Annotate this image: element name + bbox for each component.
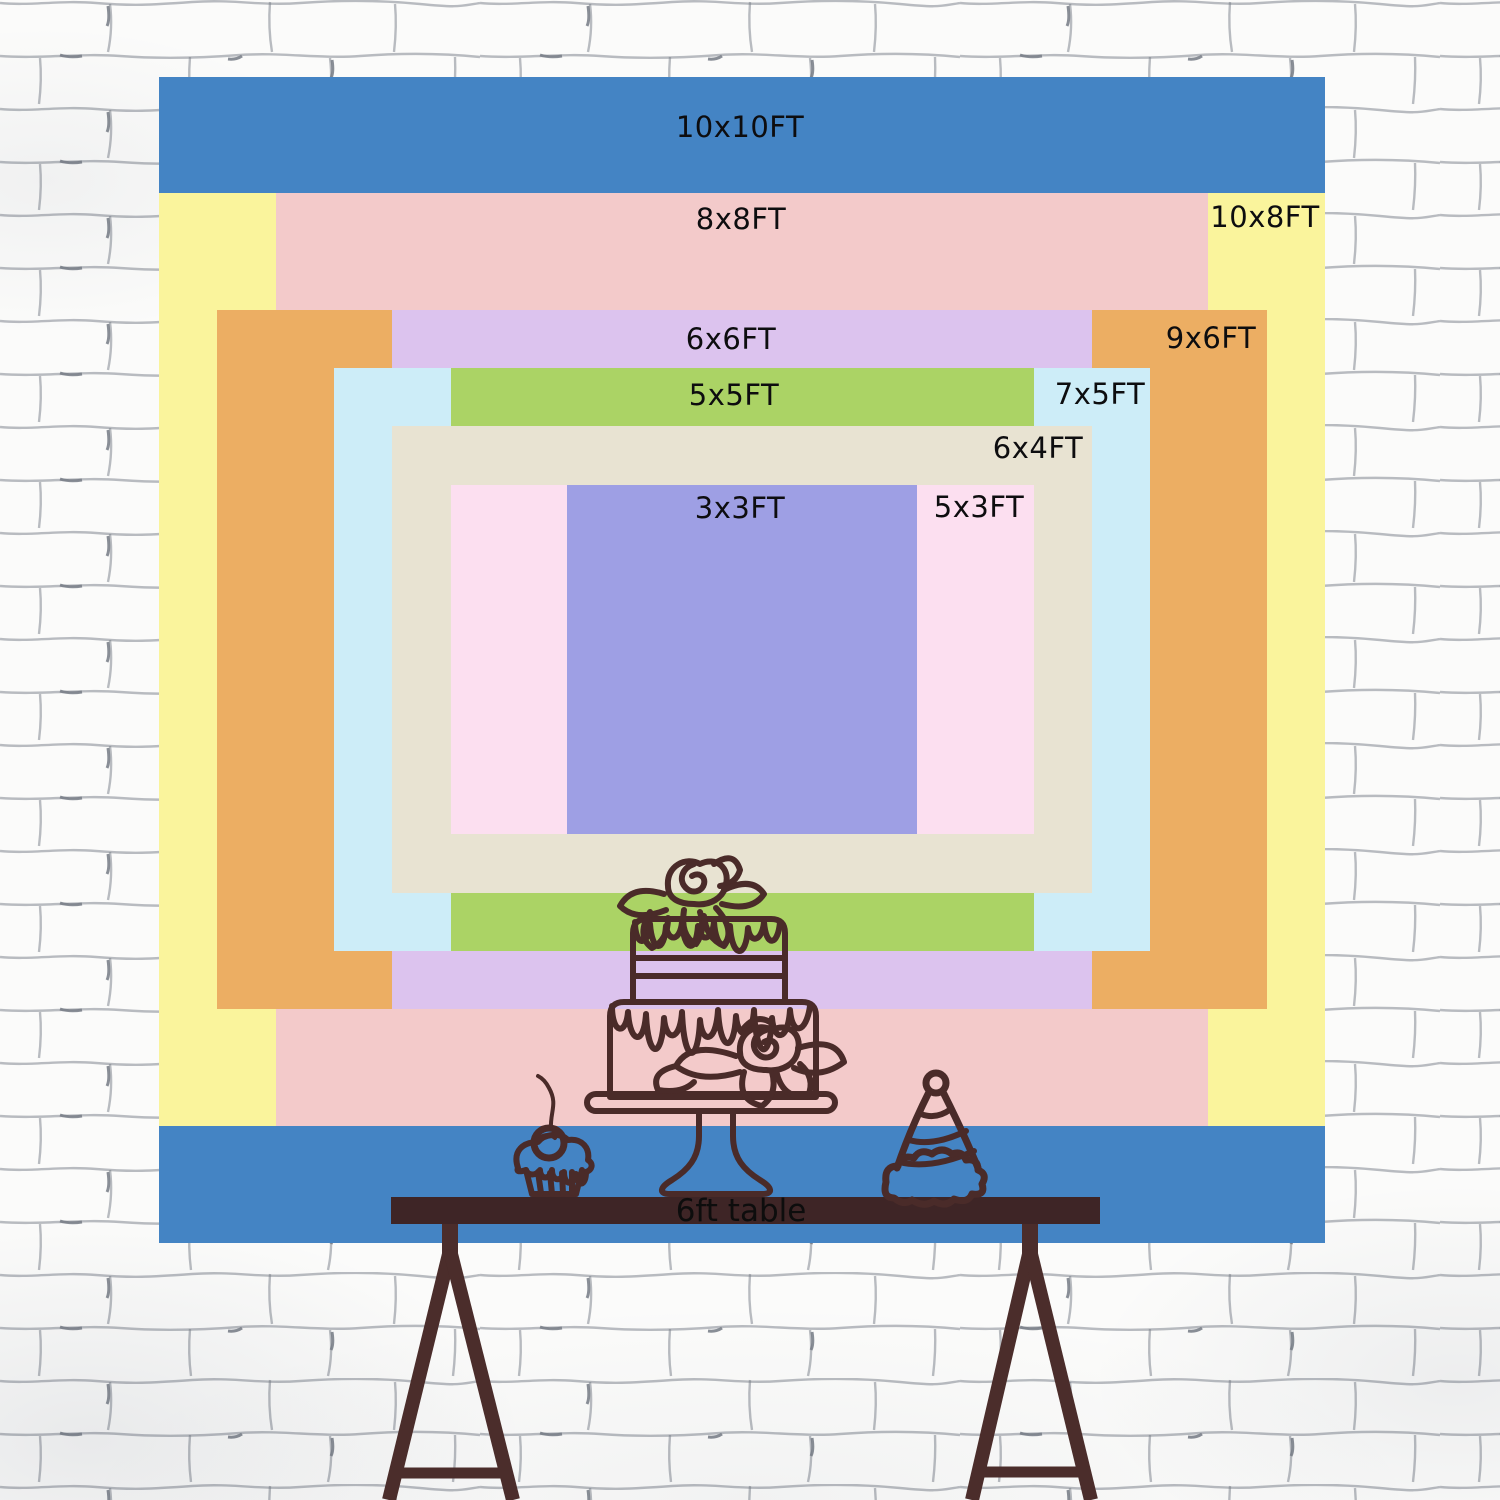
backdrop-size-chart-image: 10x10FT10x8FT8x8FT9x6FT6x6FT7x5FT5x5FT6x… — [0, 0, 1500, 1500]
table-size-label: 6ft table — [676, 1193, 807, 1229]
backdrop-rect-3x3FT — [567, 485, 917, 835]
backdrop-layers — [0, 0, 1500, 1500]
